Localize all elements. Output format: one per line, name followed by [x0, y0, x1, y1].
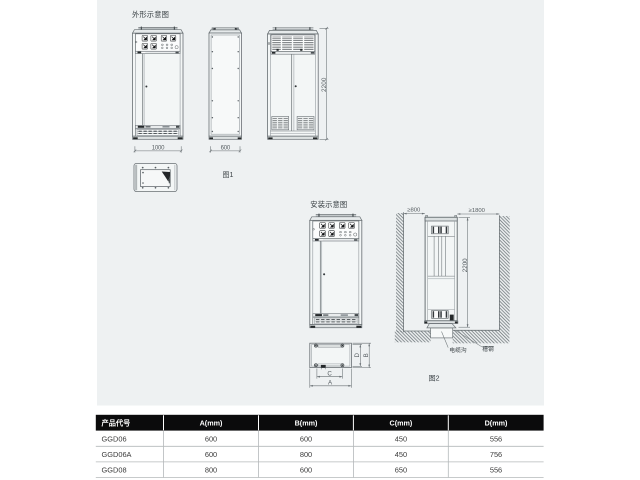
svg-text:D(mm): D(mm): [485, 419, 508, 428]
svg-text:GGD06A: GGD06A: [102, 450, 132, 459]
svg-text:图1: 图1: [223, 171, 234, 179]
svg-text:C: C: [327, 370, 332, 377]
svg-text:D: D: [354, 353, 361, 358]
svg-text:B(mm): B(mm): [295, 419, 318, 428]
svg-text:电缆沟: 电缆沟: [449, 346, 467, 354]
svg-text:图2: 图2: [429, 375, 440, 383]
svg-text:450: 450: [395, 434, 407, 443]
svg-text:外形示意图: 外形示意图: [132, 10, 169, 19]
svg-text:600: 600: [300, 434, 312, 443]
svg-text:A(mm): A(mm): [200, 419, 223, 428]
svg-text:2200: 2200: [462, 258, 469, 272]
svg-text:756: 756: [490, 450, 502, 459]
svg-text:600: 600: [300, 466, 312, 475]
svg-text:GGD06: GGD06: [102, 434, 127, 443]
svg-text:B: B: [363, 353, 370, 357]
svg-text:800: 800: [300, 450, 312, 459]
svg-text:槽钢: 槽钢: [482, 345, 494, 353]
svg-text:556: 556: [490, 466, 502, 475]
svg-text:600: 600: [205, 434, 217, 443]
svg-text:650: 650: [395, 466, 407, 475]
svg-text:450: 450: [395, 450, 407, 459]
svg-text:≥800: ≥800: [407, 207, 421, 213]
svg-text:800: 800: [205, 466, 217, 475]
svg-text:600: 600: [205, 450, 217, 459]
svg-text:C(mm): C(mm): [390, 419, 413, 428]
svg-text:安装示意图: 安装示意图: [310, 200, 347, 209]
svg-text:产品代号: 产品代号: [102, 419, 131, 428]
svg-text:556: 556: [490, 434, 502, 443]
svg-text:GGD08: GGD08: [102, 466, 127, 475]
svg-text:≥1800: ≥1800: [469, 208, 486, 214]
svg-text:1000: 1000: [152, 146, 165, 152]
svg-text:600: 600: [221, 146, 231, 152]
svg-text:2200: 2200: [321, 77, 328, 92]
